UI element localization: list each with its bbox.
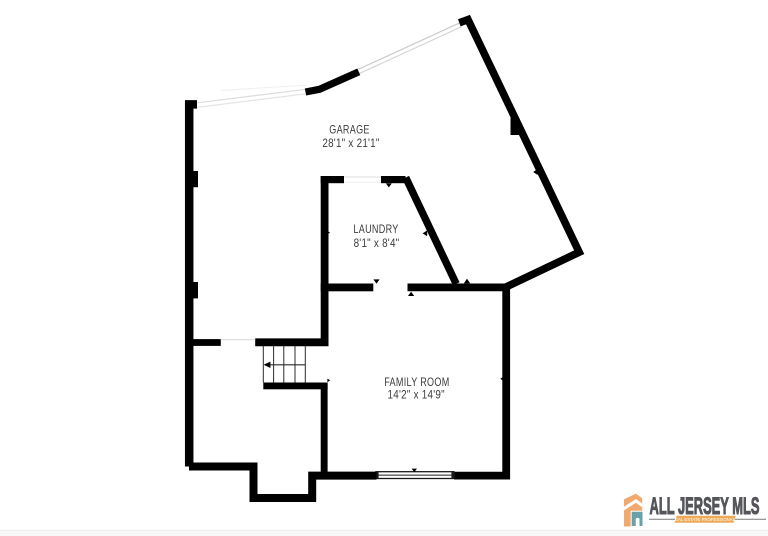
svg-text:28'1" x 21'1": 28'1" x 21'1" [322,138,379,151]
svg-text:LAUNDRY: LAUNDRY [353,224,398,236]
svg-text:REAL ESTATE PROFESSIONALS: REAL ESTATE PROFESSIONALS [672,517,738,522]
svg-text:FAMILY ROOM: FAMILY ROOM [384,377,449,389]
svg-text:8'1" x 8'4": 8'1" x 8'4" [354,237,400,250]
svg-text:14'2" x 14'9": 14'2" x 14'9" [388,389,445,402]
svg-text:GARAGE: GARAGE [329,124,370,136]
